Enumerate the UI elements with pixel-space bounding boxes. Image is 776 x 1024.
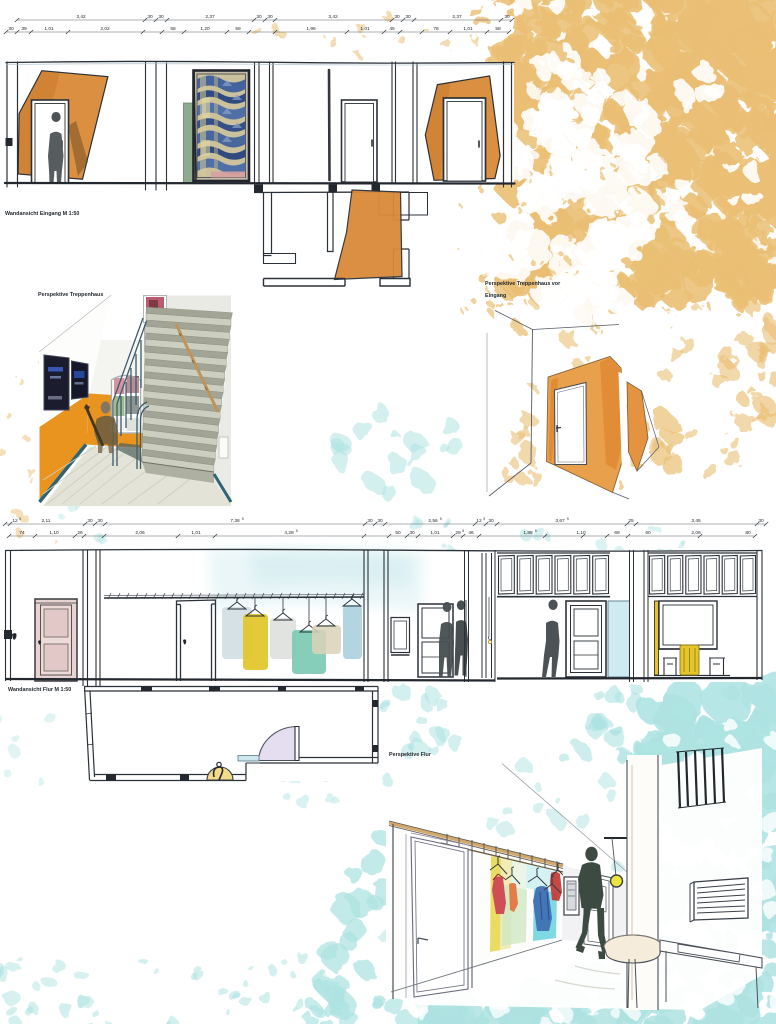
svg-text:30: 30	[87, 518, 93, 524]
svg-text:2,56: 2,56	[428, 518, 438, 524]
svg-text:2,37: 2,37	[205, 14, 215, 20]
svg-text:80: 80	[745, 530, 751, 536]
svg-text:25: 25	[628, 518, 634, 524]
svg-text:1,20: 1,20	[200, 26, 210, 32]
svg-text:Eingang: Eingang	[485, 293, 506, 299]
svg-text:58: 58	[495, 26, 501, 32]
svg-text:29: 29	[455, 530, 461, 536]
svg-text:39: 39	[21, 26, 27, 32]
svg-text:5: 5	[535, 529, 537, 533]
svg-text:46: 46	[468, 530, 474, 536]
svg-text:1,01: 1,01	[191, 530, 201, 536]
svg-text:30: 30	[504, 14, 510, 20]
svg-text:26: 26	[77, 530, 83, 536]
svg-text:Wandansicht Eingang M 1:50: Wandansicht Eingang M 1:50	[5, 211, 79, 217]
svg-text:60: 60	[645, 530, 651, 536]
svg-text:7,38: 7,38	[230, 518, 240, 524]
svg-text:1,01: 1,01	[463, 26, 473, 32]
svg-text:2,02: 2,02	[100, 26, 110, 32]
svg-text:69: 69	[614, 530, 620, 536]
svg-text:1,88: 1,88	[523, 530, 533, 536]
svg-text:1,10: 1,10	[576, 530, 586, 536]
svg-text:30: 30	[758, 518, 764, 524]
svg-text:1,01: 1,01	[430, 530, 440, 536]
svg-text:3,67: 3,67	[555, 518, 565, 524]
svg-text:1,10: 1,10	[49, 530, 59, 536]
svg-text:5: 5	[567, 517, 569, 521]
svg-text:59: 59	[235, 26, 241, 32]
svg-text:30: 30	[8, 26, 14, 32]
svg-text:5: 5	[462, 529, 464, 533]
svg-text:Perspektive Treppenhaus vor: Perspektive Treppenhaus vor	[485, 281, 561, 287]
svg-text:5: 5	[483, 517, 485, 521]
svg-text:1,96: 1,96	[306, 26, 316, 32]
svg-text:12: 12	[476, 518, 482, 524]
svg-text:30: 30	[488, 518, 494, 524]
svg-text:50: 50	[395, 530, 401, 536]
svg-text:30: 30	[256, 14, 262, 20]
svg-text:2,06: 2,06	[691, 530, 701, 536]
svg-text:4,28: 4,28	[284, 530, 294, 536]
svg-text:Perspektive Flur: Perspektive Flur	[389, 752, 432, 758]
svg-text:Perspektive Treppenhaus: Perspektive Treppenhaus	[38, 292, 103, 298]
svg-text:30: 30	[394, 14, 400, 20]
svg-text:2,06: 2,06	[135, 530, 145, 536]
svg-text:3,45: 3,45	[691, 518, 701, 524]
svg-text:1,01: 1,01	[44, 26, 54, 32]
svg-text:5: 5	[440, 517, 442, 521]
svg-text:2,37: 2,37	[452, 14, 462, 20]
svg-text:3,42: 3,42	[328, 14, 338, 20]
svg-text:30: 30	[367, 518, 373, 524]
svg-text:Wandansicht Flur M 1:50: Wandansicht Flur M 1:50	[8, 687, 71, 693]
svg-text:30: 30	[377, 518, 383, 524]
svg-text:5: 5	[19, 517, 21, 521]
svg-text:5: 5	[296, 529, 298, 533]
svg-text:58: 58	[170, 26, 176, 32]
svg-text:74: 74	[19, 530, 25, 536]
svg-text:45: 45	[389, 26, 395, 32]
svg-text:30: 30	[267, 14, 273, 20]
svg-text:30: 30	[158, 14, 164, 20]
svg-text:78: 78	[433, 26, 439, 32]
svg-text:30: 30	[147, 14, 153, 20]
svg-text:30: 30	[409, 530, 415, 536]
svg-text:3,42: 3,42	[76, 14, 86, 20]
svg-text:30: 30	[97, 518, 103, 524]
svg-text:12: 12	[12, 518, 18, 524]
svg-text:2,11: 2,11	[42, 518, 51, 524]
svg-text:30: 30	[405, 14, 411, 20]
svg-text:5: 5	[242, 517, 244, 521]
svg-text:1,01: 1,01	[360, 26, 370, 32]
